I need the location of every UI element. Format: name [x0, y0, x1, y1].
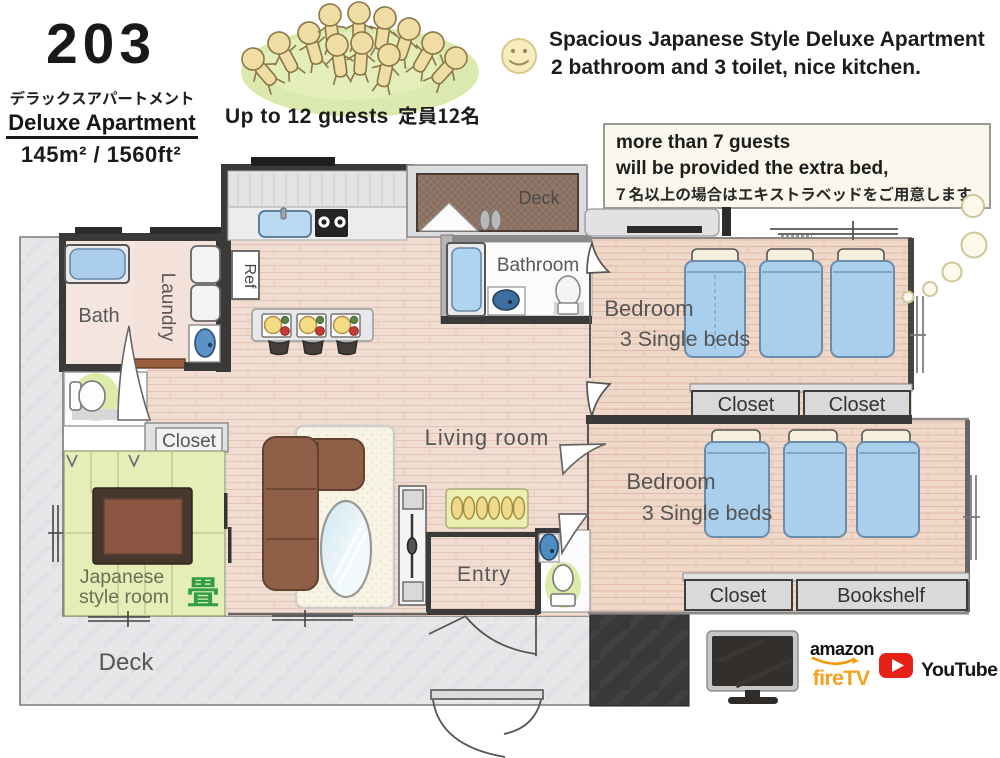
svg-text:3 Single beds: 3 Single beds — [620, 327, 750, 351]
svg-text:Deluxe Apartment: Deluxe Apartment — [8, 110, 196, 135]
svg-text:will be provided the extra bed: will be provided the extra bed, — [615, 158, 888, 179]
svg-text:Japanese: Japanese — [80, 566, 165, 588]
svg-text:Bedroom: Bedroom — [626, 469, 715, 494]
svg-text:style room: style room — [79, 586, 169, 608]
svg-text:Living room: Living room — [425, 425, 550, 450]
svg-text:203: 203 — [46, 12, 156, 76]
svg-text:Closet: Closet — [829, 394, 886, 416]
svg-text:Laundry: Laundry — [157, 273, 178, 342]
svg-text:Ref: Ref — [241, 264, 258, 289]
svg-text:Bookshelf: Bookshelf — [837, 585, 925, 607]
svg-text:Closet: Closet — [710, 585, 767, 607]
svg-text:Closet: Closet — [718, 394, 775, 416]
svg-text:Closet: Closet — [162, 431, 217, 452]
svg-text:145m² / 1560ft²: 145m² / 1560ft² — [21, 142, 181, 167]
svg-text:3 Single beds: 3 Single beds — [642, 501, 772, 525]
svg-text:Deck: Deck — [99, 649, 155, 676]
svg-text:fireTV: fireTV — [813, 666, 871, 690]
svg-text:YouTube: YouTube — [921, 659, 998, 681]
svg-text:Bathroom: Bathroom — [497, 255, 579, 276]
svg-text:Bedroom: Bedroom — [604, 296, 693, 321]
svg-text:Entry: Entry — [457, 563, 511, 586]
svg-text:amazon: amazon — [810, 639, 874, 659]
svg-text:Deck: Deck — [518, 188, 560, 208]
svg-text:2 bathroom and 3 toilet, nice: 2 bathroom and 3 toilet, nice kitchen. — [551, 56, 921, 79]
svg-text:Bath: Bath — [78, 305, 119, 327]
svg-text:Up to 12 guests: Up to 12 guests — [225, 105, 389, 128]
svg-text:more than 7 guests: more than 7 guests — [616, 132, 790, 153]
svg-text:Spacious Japanese Style Deluxe: Spacious Japanese Style Deluxe Apartment — [549, 28, 985, 51]
